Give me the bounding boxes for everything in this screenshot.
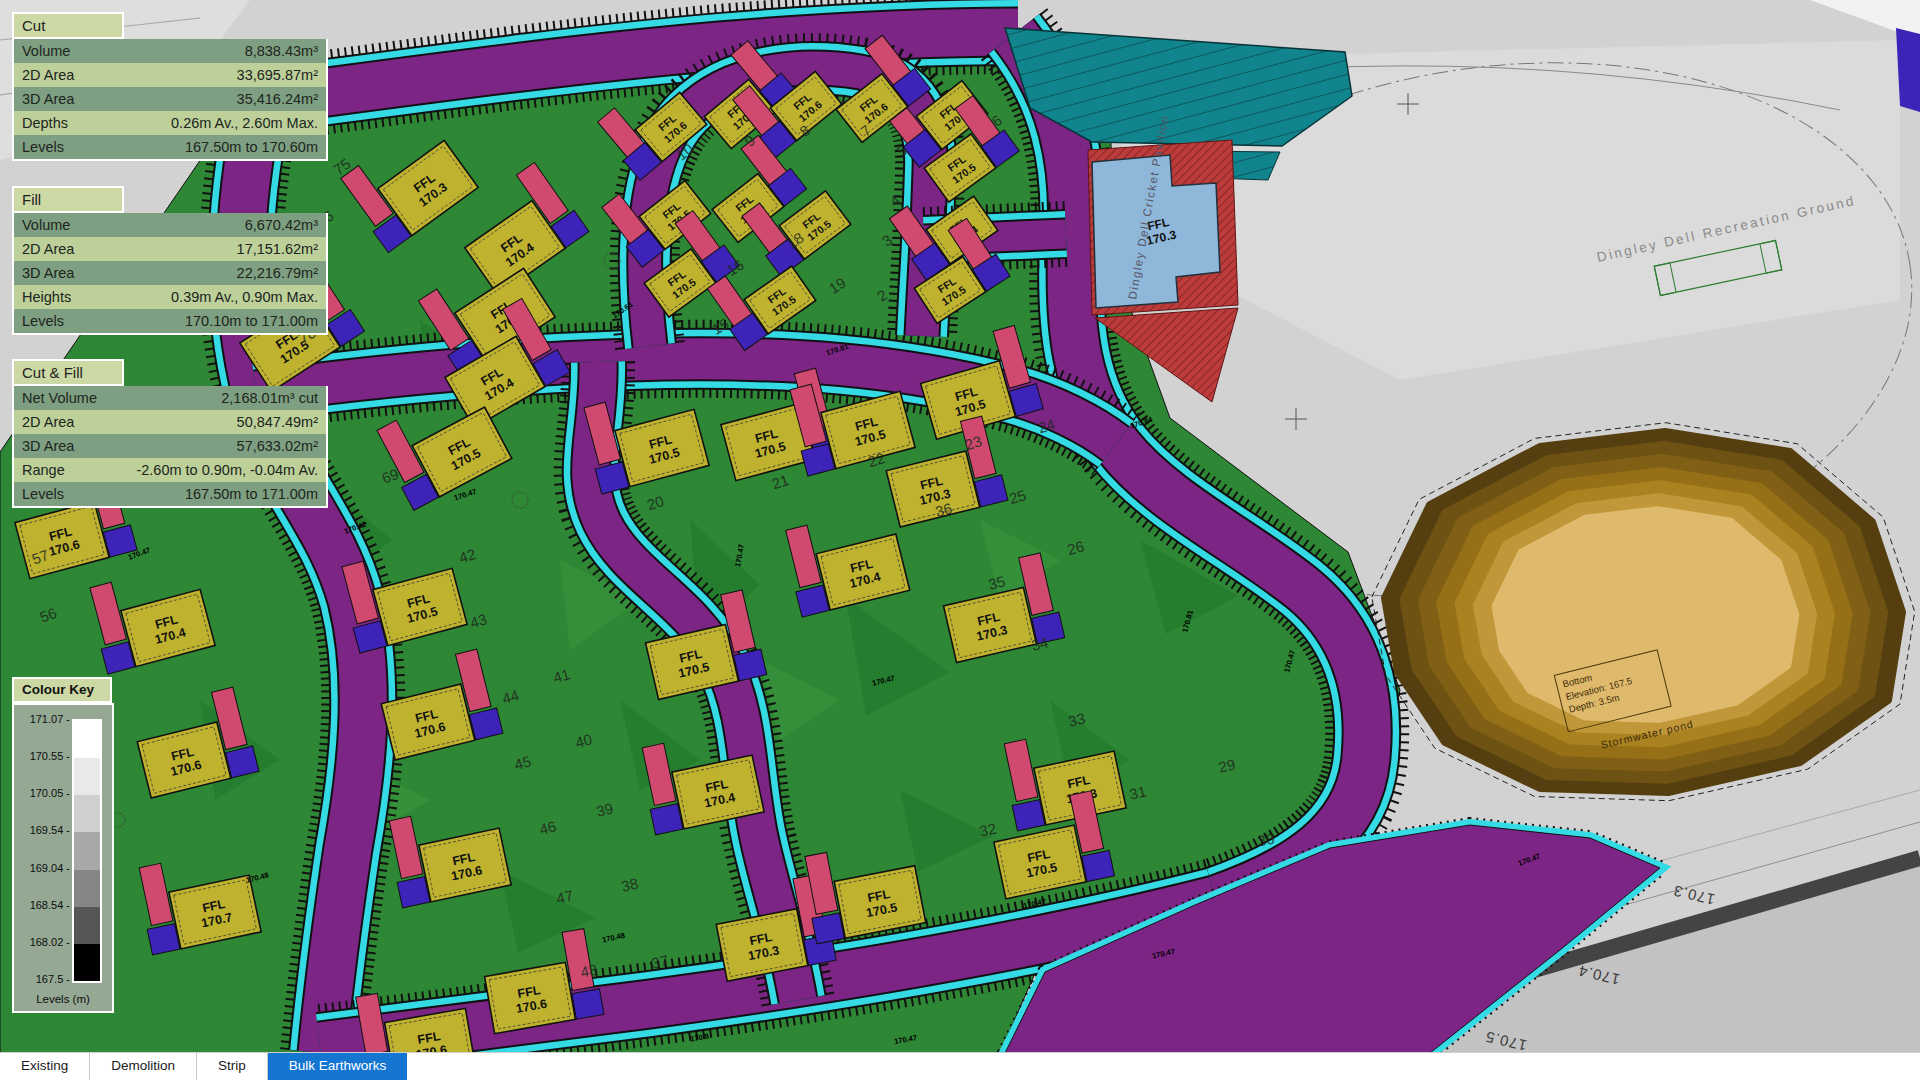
panel-row: Volume6,670.42m³ [14, 213, 326, 237]
panel-row: 2D Area33,695.87m² [14, 63, 326, 87]
panel-row: 2D Area17,151.62m² [14, 237, 326, 261]
colour-key-tick: 171.07 - [14, 713, 70, 725]
colour-key-title: Colour Key [12, 677, 112, 703]
colour-key-unit: Levels (m) [14, 993, 112, 1005]
fill-panel-rows: Volume6,670.42m³2D Area17,151.62m²3D Are… [12, 213, 328, 335]
panel-row: 3D Area35,416.24m² [14, 87, 326, 111]
colour-key-tick: 167.5 - [14, 973, 70, 985]
cut-fill-panel-rows: Net Volume2,168.01m³ cut2D Area50,847.49… [12, 386, 328, 508]
fill-panel-title: Fill [12, 186, 124, 213]
panel-row: Volume8,838.43m³ [14, 39, 326, 63]
colour-key-tick: 170.05 - [14, 787, 70, 799]
panel-row: Levels167.50m to 170.60m [14, 135, 326, 159]
cut-fill-panel: Cut & Fill Net Volume2,168.01m³ cut2D Ar… [12, 359, 328, 508]
panel-row: Heights0.39m Av., 0.90m Max. [14, 285, 326, 309]
panel-row: Net Volume2,168.01m³ cut [14, 386, 326, 410]
plot-number: 32 [978, 820, 998, 840]
colour-key-panel: Colour Key 171.07 -170.55 -170.05 -169.5… [12, 677, 114, 1013]
colour-key-tick: 168.02 - [14, 936, 70, 948]
phase-tab-bar: ExistingDemolitionStripBulk Earthworks [0, 1052, 1920, 1080]
panel-row: 3D Area22,216.79m² [14, 261, 326, 285]
plot-number: 37 [650, 952, 670, 972]
cut-panel-rows: Volume8,838.43m³2D Area33,695.87m²3D Are… [12, 39, 328, 161]
tab-bulk-earthworks[interactable]: Bulk Earthworks [268, 1053, 408, 1080]
plot-number: 29 [1217, 756, 1237, 776]
tab-strip[interactable]: Strip [197, 1053, 268, 1080]
colour-key-tick: 169.04 - [14, 862, 70, 874]
colour-key-tick: 170.55 - [14, 750, 70, 762]
colour-key-body: 171.07 -170.55 -170.05 -169.54 -169.04 -… [12, 703, 114, 1013]
panel-row: Depths0.26m Av., 2.60m Max. [14, 111, 326, 135]
panel-row: 3D Area57,633.02m² [14, 434, 326, 458]
fill-panel: Fill Volume6,670.42m³2D Area17,151.62m²3… [12, 186, 328, 335]
app-window: Dingley Dell Recreation Ground [0, 0, 1920, 1080]
colour-key-gradient [72, 719, 102, 983]
panel-row: Range-2.60m to 0.90m, -0.04m Av. [14, 458, 326, 482]
tab-demolition[interactable]: Demolition [90, 1053, 197, 1080]
panel-row: Levels170.10m to 171.00m [14, 309, 326, 333]
plot-number: 30 [1256, 830, 1276, 850]
panel-row: Levels167.50m to 171.00m [14, 482, 326, 506]
colour-key-tick: 168.54 - [14, 899, 70, 911]
plot-number: 48 [579, 961, 599, 981]
plot-number: 31 [1128, 783, 1148, 803]
colour-key-tick: 169.54 - [14, 824, 70, 836]
panel-row: 2D Area50,847.49m² [14, 410, 326, 434]
cut-panel: Cut Volume8,838.43m³2D Area33,695.87m²3D… [12, 12, 328, 161]
tab-existing[interactable]: Existing [0, 1053, 90, 1080]
cut-panel-title: Cut [12, 12, 124, 39]
cut-fill-panel-title: Cut & Fill [12, 359, 124, 386]
